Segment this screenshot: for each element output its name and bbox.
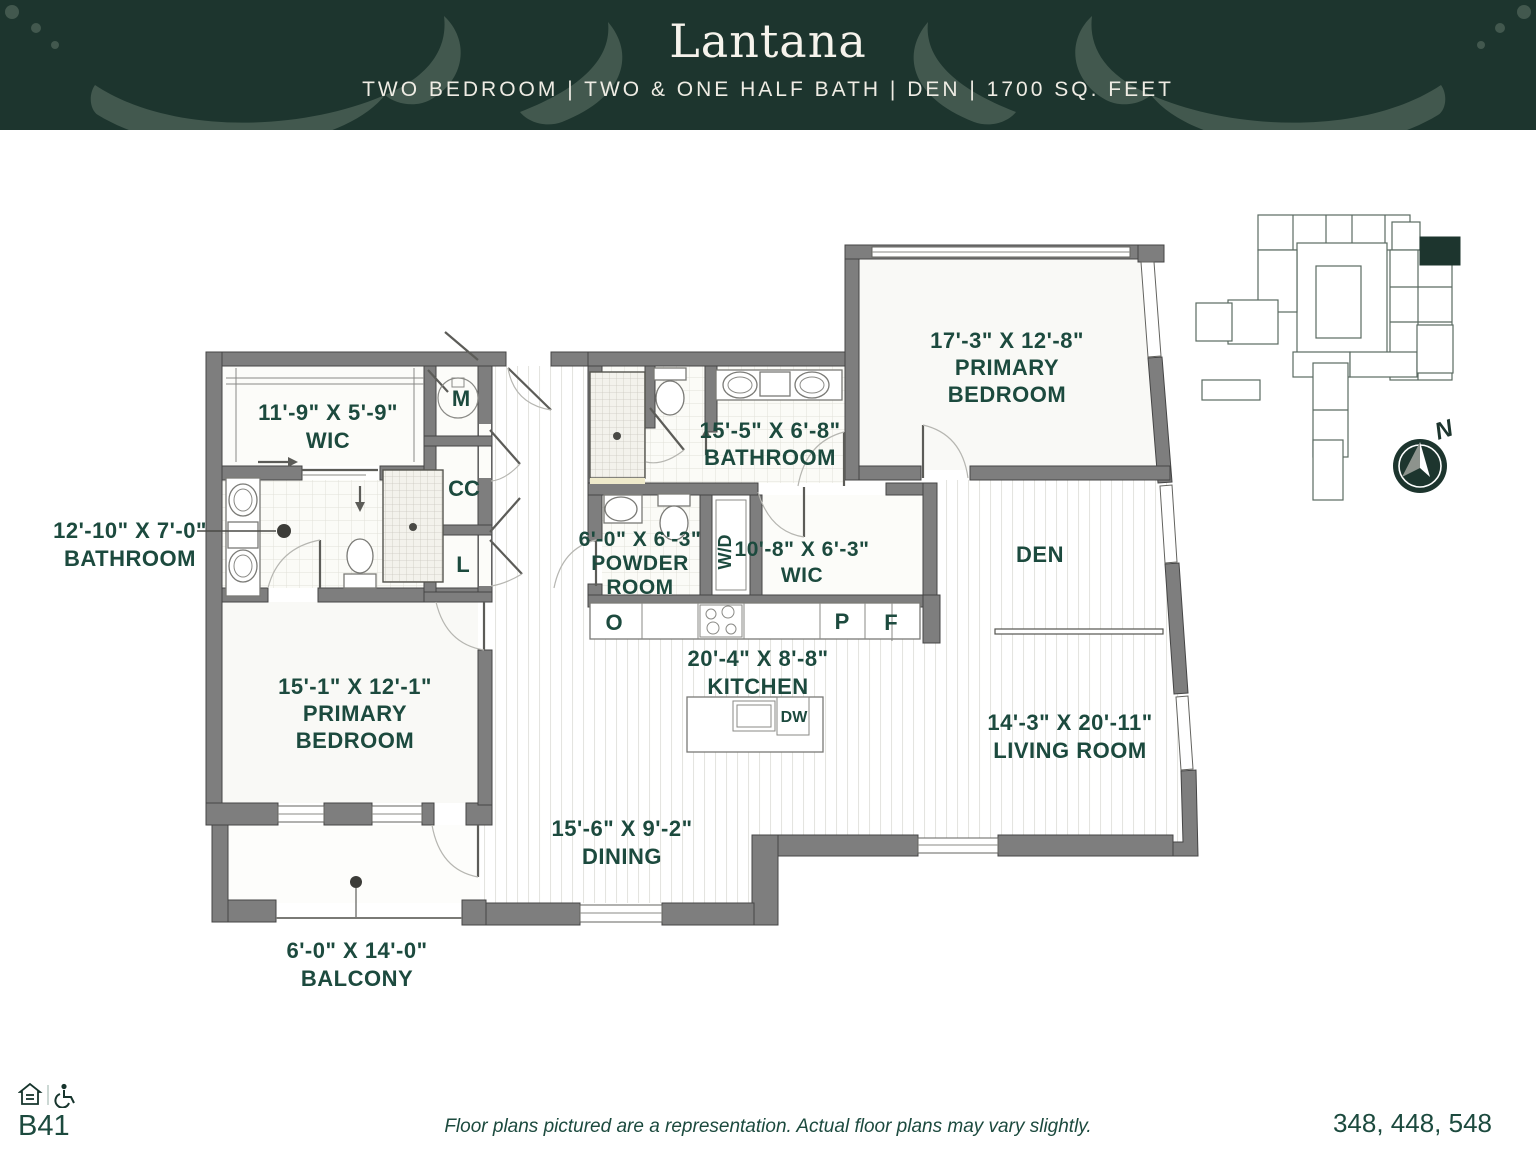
svg-text:POWDER: POWDER xyxy=(591,552,689,575)
room-label-wic2: 10'-8" X 6'-3" xyxy=(735,538,870,561)
marker-mechanical: M xyxy=(452,386,470,411)
room-label-primary1: 17'-3" X 12'-8" xyxy=(930,328,1084,353)
svg-text:ROOM: ROOM xyxy=(606,576,673,599)
svg-text:BEDROOM: BEDROOM xyxy=(948,382,1066,407)
compass-icon: N xyxy=(1393,414,1457,493)
highlighted-unit xyxy=(1420,237,1460,265)
room-label-dining: 15'-6" X 9'-2" xyxy=(551,816,692,841)
svg-text:LIVING ROOM: LIVING ROOM xyxy=(993,738,1146,763)
svg-text:BALCONY: BALCONY xyxy=(301,966,413,991)
svg-text:WIC: WIC xyxy=(306,428,350,453)
window xyxy=(372,806,422,822)
svg-text:BATHROOM: BATHROOM xyxy=(704,445,836,470)
svg-text:BATHROOM: BATHROOM xyxy=(64,546,196,571)
room-label-powder: 6'-0" X 6'-3" xyxy=(579,528,702,551)
shower-icon xyxy=(590,372,645,478)
svg-text:KITCHEN: KITCHEN xyxy=(707,674,808,699)
room-label-wic1: 11'-9" X 5'-9" xyxy=(258,400,398,425)
kitchen-counter xyxy=(590,603,920,641)
marker-linen: L xyxy=(456,552,469,577)
toilet-icon xyxy=(654,368,686,415)
room-label-balcony: 6'-0" X 14'-0" xyxy=(286,938,427,963)
sink-icon xyxy=(605,497,637,521)
unit-numbers: 348, 448, 548 xyxy=(1333,1108,1492,1139)
half-wall-den xyxy=(995,629,1163,634)
marker-oven: O xyxy=(605,610,622,635)
svg-text:WIC: WIC xyxy=(781,564,823,587)
compass-north-label: N xyxy=(1432,414,1457,445)
room-label-kitchen: 20'-4" X 8'-8" xyxy=(687,646,828,671)
room-label-den: DEN xyxy=(1016,542,1064,567)
equal-housing-icon xyxy=(20,1084,40,1104)
marker-coat-closet: CC xyxy=(448,476,480,501)
accessibility-icon xyxy=(55,1084,74,1108)
window xyxy=(918,838,998,853)
window xyxy=(278,806,324,822)
svg-text:BEDROOM: BEDROOM xyxy=(296,728,414,753)
window xyxy=(580,905,662,922)
svg-text:PRIMARY: PRIMARY xyxy=(303,701,407,726)
marker-washer-dryer: W/D xyxy=(715,535,735,570)
room-label-bathroom1: 12'-10" X 7'-0" xyxy=(53,518,207,543)
floorplan-drawing: 11'-9" X 5'-9" WIC 12'-10" X 7'-0" BATHR… xyxy=(0,0,1536,1152)
footer-icons xyxy=(18,1082,108,1113)
floor-hall xyxy=(492,366,588,607)
window xyxy=(872,247,1130,257)
room-label-primary2: 15'-1" X 12'-1" xyxy=(278,674,432,699)
marker-pantry: P xyxy=(835,609,850,634)
disclaimer-text: Floor plans pictured are a representatio… xyxy=(0,1116,1536,1138)
vanity-cabinet xyxy=(228,522,258,548)
floorplan-page: { "header": { "title": "Lantana", "subti… xyxy=(0,0,1536,1152)
svg-text:PRIMARY: PRIMARY xyxy=(955,355,1059,380)
floor-balcony xyxy=(228,825,480,903)
svg-text:DINING: DINING xyxy=(582,844,662,869)
toilet-icon xyxy=(344,539,376,588)
marker-fridge: F xyxy=(884,610,897,635)
vanity-cabinet xyxy=(760,372,790,396)
room-label-living: 14'-3" X 20'-11" xyxy=(987,710,1152,735)
room-label-bathroom2: 15'-5" X 6'-8" xyxy=(699,418,840,443)
marker-dishwasher: DW xyxy=(781,709,809,726)
